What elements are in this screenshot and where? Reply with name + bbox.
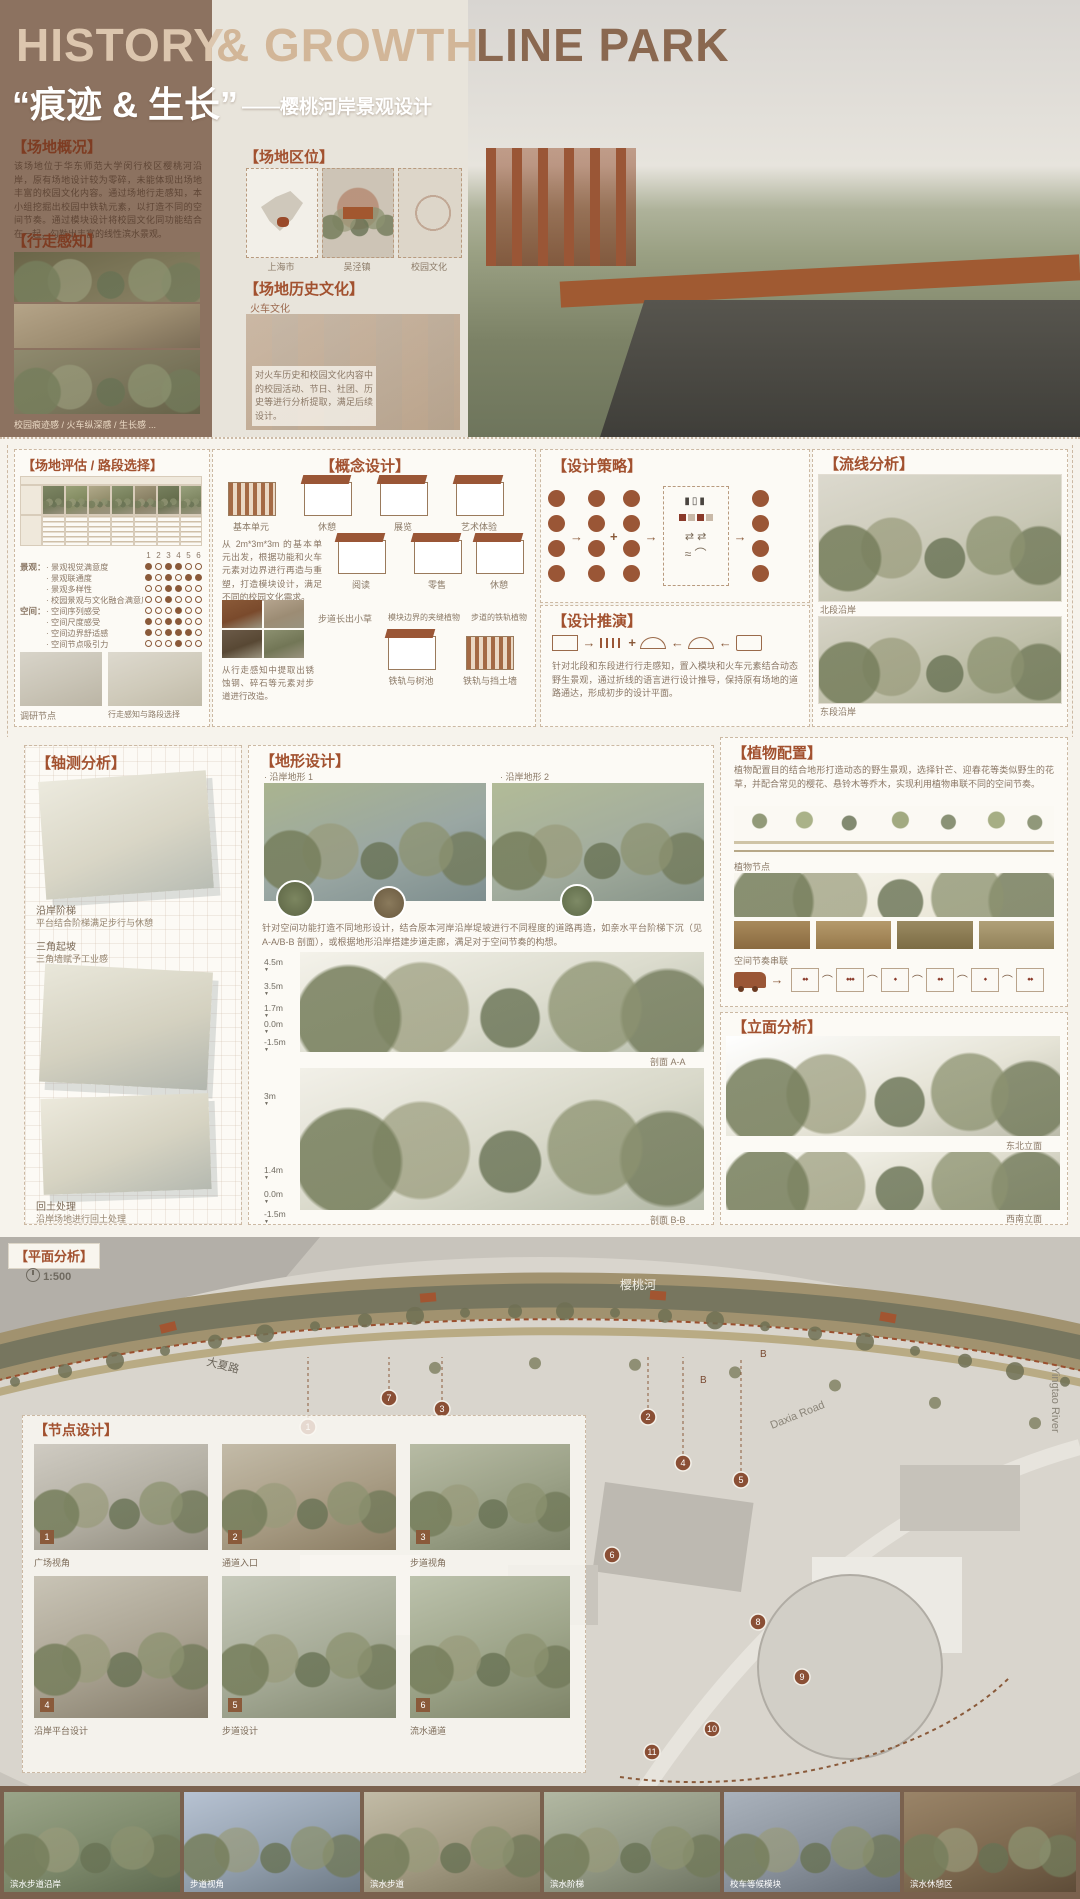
plus-icon: + — [610, 529, 618, 544]
walking-photo-railway — [14, 304, 200, 348]
bottom-caption-1: 滨水步道沿岸 — [10, 1878, 61, 1890]
heading-evaluation: 【场地评估 / 路段选择】 — [22, 455, 163, 474]
node-photo-6: 6 — [410, 1576, 570, 1718]
module-label-rest2: 休憩 — [464, 578, 534, 591]
walking-photo-path — [14, 350, 200, 414]
circulation-north-image — [818, 474, 1062, 602]
texture-label-grass: 步道长出小草 — [312, 612, 378, 625]
planting-text: 植物配置目的结合地形打造动态的野生景观，选择针芒、迎春花等类似野生的花草，并配合… — [734, 764, 1054, 791]
caption-east-bank: 东段沿岸 — [820, 705, 856, 718]
label-rail-treepit: 铁轨与树池 — [376, 674, 446, 687]
module-icon-rest1 — [304, 482, 352, 516]
elevation-image-southwest — [726, 1152, 1060, 1210]
module-label-exhibit: 展览 — [368, 520, 438, 533]
terrain-callout-2 — [372, 886, 406, 920]
node-photo-2: 2 — [222, 1444, 396, 1550]
terrain-callout-3 — [560, 884, 594, 918]
walking-photo-forest — [14, 252, 200, 302]
strategy-train-icons — [588, 486, 605, 586]
elev-1-4: 1.4m — [264, 1166, 283, 1181]
river-label-cn: 樱桃河 — [620, 1277, 656, 1292]
module-icon-rail-treepit — [388, 636, 436, 670]
map-wujing — [322, 168, 394, 258]
plan-scale-row: 1:500 — [26, 1268, 71, 1283]
hero-pergola-structure — [486, 148, 636, 266]
node-number-chip: 1 — [40, 1530, 54, 1544]
derivation-diagram: → + ← ← — [552, 634, 796, 652]
svg-text:4: 4 — [680, 1458, 685, 1468]
planting-rhythm-row: → ⬩⬩⌒⬩⬩⬩⌒⬩⌒⬩⬩⌒⬩⌒⬩⬩ — [734, 968, 1058, 992]
map-shanghai-highlight — [277, 217, 289, 227]
map-wujing-tag — [343, 207, 373, 219]
elev-3m: 3m — [264, 1092, 276, 1107]
texture-label-gap-plants: 模块边界的夹缝植物 — [382, 612, 466, 623]
circulation-east-image — [818, 616, 1062, 704]
svg-text:2: 2 — [645, 1412, 650, 1422]
module-icon-retail — [414, 540, 462, 574]
label-train-culture: 火车文化 — [250, 300, 290, 315]
terrain-sectionB-image — [300, 1068, 704, 1210]
node-photo-1: 1 — [34, 1444, 208, 1550]
strategy-problems-icons — [548, 486, 565, 586]
bottom-photo-2 — [184, 1792, 360, 1892]
axon-label-3: 回土处理 — [36, 1198, 76, 1213]
site-overview-text: 该场地位于华东师范大学闵行校区樱桃河沿岸，原有场地设计较为零碎，未能体现出场地丰… — [14, 160, 202, 241]
planting-sub-rhythm: 空间节奏串联 — [734, 954, 788, 967]
module-label-basic-unit: 基本单元 — [216, 520, 286, 533]
svg-text:10: 10 — [707, 1724, 717, 1734]
evaluation-ratings: 123456景观：· 景观视觉满意度· 景观联通度· 景观多样性· 校园景观与文… — [20, 550, 202, 649]
svg-text:5: 5 — [738, 1475, 743, 1485]
evaluation-route-map — [108, 652, 202, 706]
heading-concept: 【概念设计】 — [320, 455, 410, 476]
svg-text:6: 6 — [609, 1550, 614, 1560]
concept-text-2: 从行走感知中提取出锈蚀钢、碎石等元素对步道进行改造。 — [222, 664, 314, 702]
terrain-render-2 — [492, 783, 704, 901]
terrain-sub-1: · 沿岸地形 1 — [264, 770, 313, 783]
axon-model-1 — [38, 770, 214, 899]
caption-northeast-elevation: 东北立面 — [1006, 1139, 1042, 1152]
elev-0-0b: 0.0m — [264, 1190, 283, 1205]
caption-route-selection: 行走感知与路段选择 — [108, 709, 180, 720]
module-icon-rest2 — [476, 540, 524, 574]
river-label-en: Yingtao River — [1049, 1367, 1061, 1433]
bottom-photo-4 — [544, 1792, 720, 1892]
bottom-caption-4: 滨水阶梯 — [550, 1878, 584, 1890]
strategy-goals-icons — [752, 486, 769, 586]
hero-path — [600, 300, 1080, 437]
planting-sub-nodes: 植物节点 — [734, 860, 770, 873]
module-label-rest1: 休憩 — [292, 520, 362, 533]
elev-1-7: 1.7m — [264, 1004, 283, 1019]
arrow-icon: → — [734, 529, 747, 544]
node-number-chip: 6 — [416, 1698, 430, 1712]
arrow-icon: → — [570, 529, 583, 544]
arrow-icon: → — [770, 972, 783, 987]
section-marker-b2: B — [760, 1349, 767, 1360]
poster-board: HISTORY & GROWTH LINE PARK “痕迹 & 生长” ——樱… — [0, 0, 1080, 1899]
label-rail-wall: 铁轨与挡土墙 — [452, 674, 528, 687]
texture-soil — [222, 630, 262, 658]
module-label-reading: 阅读 — [326, 578, 396, 591]
map-caption-campus: 校园文化 — [398, 260, 460, 273]
bottom-caption-6: 滨水休憩区 — [910, 1878, 953, 1890]
module-label-art: 艺术体验 — [444, 520, 514, 533]
node-caption-6: 流水通道 — [410, 1724, 446, 1737]
elev-neg15a: -1.5m — [264, 1038, 286, 1053]
axon-model-3 — [40, 1093, 211, 1195]
concept-text-1: 从 2m*3m*3m 的基本单元出发，根据功能和火车元素对边界进行再造与重塑，打… — [222, 538, 322, 604]
axon-desc-1: 平台结合阶梯满足步行与休憩 — [36, 916, 153, 929]
node-photo-5: 5 — [222, 1576, 396, 1718]
heading-site-location: 【场地区位】 — [244, 146, 334, 167]
svg-text:7: 7 — [386, 1393, 391, 1403]
clock-icon — [26, 1268, 40, 1282]
node-caption-4: 沿岸平台设计 — [34, 1724, 88, 1737]
heading-plan: 【平面分析】 — [15, 1249, 93, 1264]
plan-scale: 1:500 — [43, 1271, 71, 1283]
heading-node-design: 【节点设计】 — [34, 1420, 118, 1440]
evaluation-node-map — [20, 652, 102, 706]
axon-model-2 — [39, 964, 213, 1091]
axon-desc-3: 沿岸场地进行回土处理 — [36, 1212, 126, 1225]
elev-neg15b: -1.5m — [264, 1210, 286, 1225]
heading-terrain: 【地形设计】 — [260, 750, 350, 771]
section-marker-b1: B — [700, 1375, 707, 1386]
walking-caption: 校园痕迹感 / 火车纵深感 / 生长感 ... — [14, 418, 156, 431]
terrain-sectionA-image — [300, 952, 704, 1052]
bottom-caption-3: 滨水步道 — [370, 1878, 404, 1890]
node-caption-3: 步道视角 — [410, 1556, 446, 1569]
svg-text:3: 3 — [439, 1404, 444, 1414]
planting-plan-strip — [734, 806, 1054, 856]
title-line-park: LINE PARK — [476, 22, 730, 68]
node-number-chip: 4 — [40, 1698, 54, 1712]
heading-walking-perception: 【行走感知】 — [12, 230, 102, 251]
derivation-text: 针对北段和东段进行行走感知，置入模块和火车元素结合动态野生景观，通过折线的语言进… — [552, 660, 798, 701]
heading-strategy: 【设计策略】 — [552, 455, 642, 476]
elev-3-5: 3.5m — [264, 982, 283, 997]
subtitle-dash: ——樱桃河岸景观设计 — [242, 92, 432, 119]
elevation-image-northeast — [726, 1036, 1060, 1136]
caption-section-AA: 剖面 A-A — [650, 1055, 686, 1068]
train-icon — [734, 972, 766, 988]
svg-text:8: 8 — [755, 1617, 760, 1627]
history-text: 对火车历史和校园文化内容中的校园活动、节日、社团、历史等进行分析提取，满足后续设… — [252, 366, 376, 426]
texture-gravel — [264, 600, 304, 628]
elev-0-0a: 0.0m — [264, 1020, 283, 1035]
terrain-sub-2: · 沿岸地形 2 — [500, 770, 549, 783]
node-caption-5: 步道设计 — [222, 1724, 258, 1737]
node-caption-2: 通道入口 — [222, 1556, 258, 1569]
heading-circulation: 【流线分析】 — [824, 453, 914, 474]
texture-label-rail-plants: 步道的铁轨植物 — [466, 612, 532, 623]
map-caption-shanghai: 上海市 — [246, 260, 316, 273]
plan-heading-tag: 【平面分析】 — [8, 1243, 100, 1269]
bottom-photo-6 — [904, 1792, 1076, 1892]
title-growth: & GROWTH — [216, 22, 480, 68]
elev-4-5: 4.5m — [264, 958, 283, 973]
node-number-chip: 5 — [228, 1698, 242, 1712]
module-label-retail: 零售 — [402, 578, 472, 591]
planting-module-sections — [734, 921, 1054, 949]
node-caption-1: 广场视角 — [34, 1556, 70, 1569]
terrain-text: 针对空间功能打造不同地形设计，结合原本河岸沿岸堤坡进行不同程度的道路再造，如亲水… — [262, 922, 702, 949]
caption-southwest-elevation: 西南立面 — [1006, 1212, 1042, 1225]
planting-sections-row — [734, 873, 1054, 917]
axon-label-1: 沿岸阶梯 — [36, 902, 76, 917]
terrain-callout-1 — [276, 880, 314, 918]
module-icon-art — [456, 482, 504, 516]
subtitle-cn: “痕迹 & 生长” — [12, 76, 238, 128]
module-icon-rail-wall — [466, 636, 514, 670]
module-icon-basic-unit — [228, 482, 276, 516]
map-caption-wujing: 吴泾镇 — [322, 260, 392, 273]
bottom-photo-1 — [4, 1792, 180, 1892]
axon-label-2: 三角起坡 — [36, 938, 76, 953]
node-photo-3: 3 — [410, 1444, 570, 1550]
node-number-chip: 3 — [416, 1530, 430, 1544]
node-photo-4: 4 — [34, 1576, 208, 1718]
evaluation-table — [20, 476, 202, 546]
svg-text:11: 11 — [647, 1747, 656, 1757]
strategy-campus-icons — [623, 486, 640, 586]
heading-planting: 【植物配置】 — [732, 742, 822, 763]
heading-derivation: 【设计推演】 — [552, 610, 642, 631]
strategy-methods-box: ▮▯▮ ⇄ ⇄ ≈ ⌒ — [663, 486, 729, 586]
caption-survey-nodes: 调研节点 — [20, 709, 56, 722]
heading-history-culture: 【场地历史文化】 — [244, 278, 364, 299]
title-history: HISTORY — [16, 22, 225, 68]
module-icon-reading — [338, 540, 386, 574]
texture-rust — [222, 600, 262, 628]
strategy-diagram: → + → ▮▯▮ ⇄ ⇄ ≈ ⌒ → — [548, 480, 800, 592]
bottom-photo-5 — [724, 1792, 900, 1892]
node-number-chip: 2 — [228, 1530, 242, 1544]
heading-site-overview: 【场地概况】 — [12, 136, 102, 157]
bottom-photo-3 — [364, 1792, 540, 1892]
heading-elevation: 【立面分析】 — [732, 1016, 822, 1037]
arrow-icon: → — [645, 529, 658, 544]
module-icon-exhibit — [380, 482, 428, 516]
svg-text:9: 9 — [799, 1672, 804, 1682]
bottom-caption-5: 校车等候模块 — [730, 1878, 781, 1890]
texture-plants — [264, 630, 304, 658]
heading-axon: 【轴测分析】 — [36, 752, 126, 773]
caption-section-BB: 剖面 B-B — [650, 1213, 686, 1226]
plan-plaza-circle — [758, 1575, 942, 1759]
bottom-caption-2: 步道视角 — [190, 1878, 224, 1890]
map-shanghai — [246, 168, 318, 258]
map-campus — [398, 168, 462, 258]
caption-north-bank: 北段沿岸 — [820, 603, 856, 616]
